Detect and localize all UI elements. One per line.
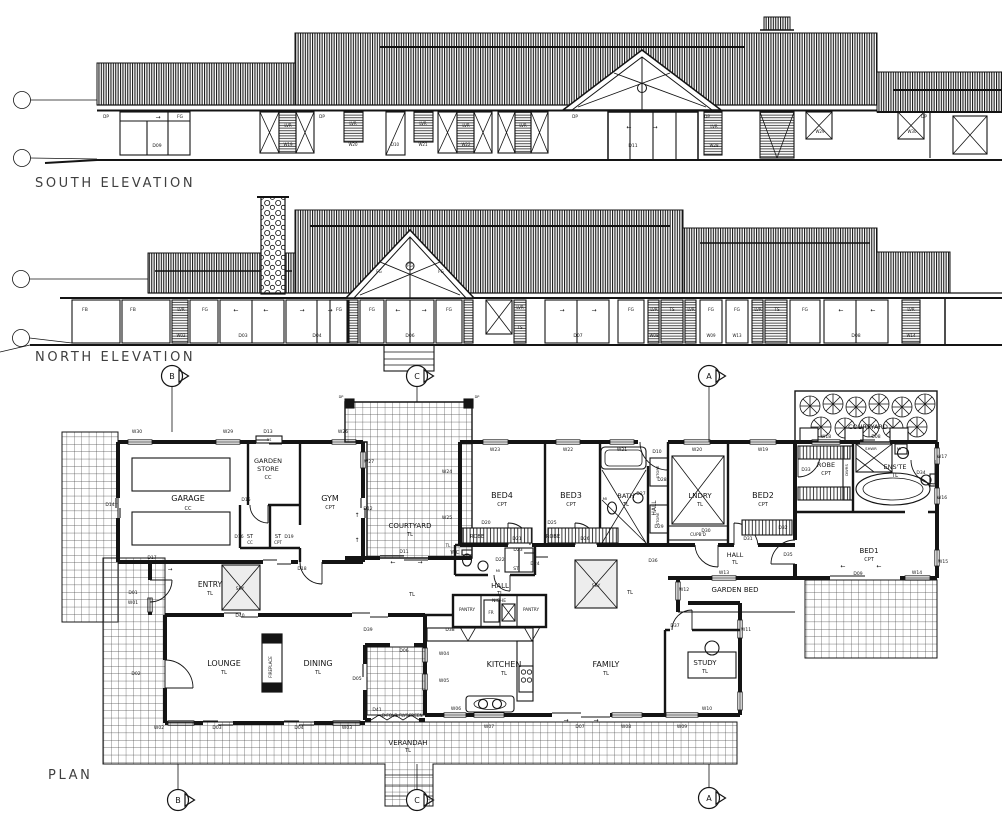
window-tag: W13 xyxy=(719,570,729,576)
fixture-label: ST xyxy=(513,566,519,572)
window-tag: W20 xyxy=(692,447,702,453)
fixture-label: DP xyxy=(339,395,344,399)
bath-toilet xyxy=(608,502,617,514)
finish-code: CPT xyxy=(566,502,577,508)
elevation-tag: FG xyxy=(177,114,184,120)
car-space xyxy=(132,458,230,491)
fixture-label: B-FOLD FLYSCREEN xyxy=(382,713,423,718)
window-tag: W17 xyxy=(937,454,947,460)
elevation-tag: LVR xyxy=(177,307,185,312)
elevation-tag: FG xyxy=(708,307,715,313)
direction-arrow: ← xyxy=(876,563,881,570)
window-tag: W05 xyxy=(439,678,449,684)
finish-code: CPT xyxy=(758,502,769,508)
elevation-tag: D08 xyxy=(851,333,860,339)
elevation-tag: → xyxy=(327,307,332,314)
room-label: GARAGE xyxy=(171,494,205,503)
elevation-tag: LVR xyxy=(284,123,292,128)
fixture-label: MI xyxy=(897,446,901,451)
post xyxy=(464,399,473,408)
door-tag: D13 xyxy=(263,429,272,435)
window-tag: W22 xyxy=(563,447,573,453)
door-tag: D09 xyxy=(853,571,862,577)
direction-arrow: → xyxy=(593,717,598,724)
elevation-tag: LVR xyxy=(516,305,524,310)
bed1-paving xyxy=(805,580,937,658)
elevation-tag: W22 xyxy=(461,142,471,147)
door-tag: D02 xyxy=(131,671,140,677)
elevation-tag: DP xyxy=(103,114,109,119)
room-label: LOUNGE xyxy=(207,659,241,668)
elevation-tag: FG xyxy=(438,269,443,274)
elevation-tag: ← xyxy=(395,307,400,314)
elevation-tag: ← xyxy=(263,307,268,314)
elevation-tag: W08 xyxy=(649,333,659,338)
section-marker: A xyxy=(699,366,726,387)
finish-code: TL xyxy=(891,473,898,479)
room-label: GYM xyxy=(321,494,339,503)
finish-code: TL xyxy=(496,591,503,597)
finish-code: TL xyxy=(408,592,415,598)
room-label: ENS'TE xyxy=(884,463,907,471)
section-marker-letter: C xyxy=(414,372,420,381)
door-tag: D18 xyxy=(297,566,306,572)
section-marker-letter: A xyxy=(706,794,712,803)
fixture-label: FIREPLACE xyxy=(268,656,273,678)
door-tag: D23 xyxy=(513,547,522,553)
finish-code: CPT xyxy=(864,557,875,563)
elevation-tag: ← xyxy=(870,307,875,314)
post xyxy=(345,399,354,408)
room-label: GARDEN BED xyxy=(712,586,759,594)
door-tag: D36 xyxy=(648,558,657,564)
window-tag: W09 xyxy=(677,724,687,730)
elevation-tag: FG xyxy=(369,307,376,313)
finish-code: TL xyxy=(500,671,507,677)
room-label: ENTRY xyxy=(198,580,223,589)
window-tag: W03 xyxy=(342,725,352,731)
window-tag: W24 xyxy=(442,469,452,475)
room-label: HALL xyxy=(727,551,744,559)
door-tag: D41 xyxy=(372,707,381,713)
elevation-tag: → xyxy=(559,307,564,314)
elevation-tag: ← xyxy=(233,307,238,314)
window-tag: W04 xyxy=(439,651,449,657)
direction-arrow: → xyxy=(168,567,173,573)
door-tag: D07 xyxy=(575,724,584,730)
finish-code: TL xyxy=(406,532,413,538)
section-marker: B xyxy=(168,790,195,811)
elevation-tag: W19 xyxy=(283,142,293,147)
window-tag: W30 xyxy=(132,429,142,435)
door-tag: D17 xyxy=(147,555,156,561)
elevation-tag: TS xyxy=(517,325,523,330)
fixture-label: SKY xyxy=(592,583,601,589)
finish-code: CPT xyxy=(497,502,508,508)
south-roof xyxy=(97,17,1002,112)
room-label: LNDRY xyxy=(688,492,712,500)
elevation-tag: FG xyxy=(336,307,343,313)
sink xyxy=(493,700,502,709)
robe-shelf xyxy=(798,487,850,500)
room-label: HALL xyxy=(491,582,509,590)
elevation-tag: D11 xyxy=(628,143,637,149)
wc-basin xyxy=(478,561,488,571)
door-tag: D22 xyxy=(495,557,504,563)
elevation-tag: FG xyxy=(734,307,741,313)
pantry-doors xyxy=(460,627,540,641)
window-tag: W07 xyxy=(484,724,494,730)
elevation-tag: LVR xyxy=(650,307,658,312)
room-label: VERANDAH xyxy=(388,739,427,747)
door-tag: D21 xyxy=(512,536,521,542)
window-tag: W19 xyxy=(758,447,768,453)
finish-code: CC xyxy=(185,506,192,512)
window-tag: W16 xyxy=(937,495,947,501)
elevation-tag: DP xyxy=(921,114,927,119)
door-tag: D25 xyxy=(547,520,556,526)
room-label: GARDEN xyxy=(254,457,282,465)
elevation-tag: FG xyxy=(376,269,381,274)
window-tag: W10 xyxy=(702,706,712,712)
door-tag: D27 xyxy=(636,491,645,497)
elevation-tag: → xyxy=(155,114,160,121)
finish-code: CPT xyxy=(274,540,282,545)
south-elevation: SOUTH ELEVATION xyxy=(14,17,1002,191)
elevation-tag: D04 xyxy=(312,333,321,339)
direction-arrow: → xyxy=(417,559,422,566)
fixture-label: ST xyxy=(247,534,254,540)
elevation-tag: FG xyxy=(802,307,809,313)
elevation-tag: W20 xyxy=(348,142,358,147)
direction-arrow: ↑ xyxy=(354,537,359,544)
door-tag: D32 xyxy=(778,525,787,531)
window-tag: W11 xyxy=(741,627,751,633)
door-tag: D08 xyxy=(871,434,880,440)
door-tag: D37 xyxy=(670,623,679,629)
finish-code: TL xyxy=(404,748,411,754)
finish-code: TL xyxy=(206,591,213,597)
door-tag: D33 xyxy=(801,467,810,473)
elevation-tag: LVR xyxy=(754,307,762,312)
finish-code: CC xyxy=(247,540,253,545)
door-tag: D20 xyxy=(481,520,490,526)
elevation-tag: DP xyxy=(572,114,578,119)
elevation-tag: ← xyxy=(838,307,843,314)
window-tag: W01 xyxy=(128,600,138,606)
skylight-boxes xyxy=(222,560,617,610)
room-label: BATH xyxy=(617,492,634,500)
fixture-label: DP xyxy=(475,395,480,399)
fixture-label: SKY xyxy=(236,586,245,592)
room-label: BED3 xyxy=(560,491,582,500)
door-tag: D34 xyxy=(916,470,925,476)
fixture-label: FR xyxy=(488,610,493,615)
direction-arrow: ← xyxy=(390,559,395,566)
door-tag: D04 xyxy=(294,725,303,731)
room-label: ROBE xyxy=(817,461,835,469)
window-tag: W25 xyxy=(442,515,452,521)
elevation-tag: D10 xyxy=(391,142,400,147)
section-marker: A xyxy=(699,788,726,809)
room-label: COURTYARD xyxy=(848,423,888,431)
window-tag: W29 xyxy=(223,429,233,435)
north-elevation: NORTH ELEVATION xyxy=(0,197,1002,371)
door-tag: D15 xyxy=(241,497,250,503)
fixture-label: PANTRY xyxy=(459,607,475,612)
window-tag: W08 xyxy=(621,724,631,730)
elevation-tag: → xyxy=(652,124,657,131)
fixture-label: PANTRY xyxy=(523,607,539,612)
elevation-tag: LVR xyxy=(710,124,718,129)
door-tag: D11 xyxy=(399,549,408,555)
elevation-tag: LVR xyxy=(907,307,915,312)
elevation-tag: FG xyxy=(407,263,412,268)
elevation-tag: W02 xyxy=(176,333,186,338)
door-tag: D01 xyxy=(128,590,137,596)
elevation-tag: W13 xyxy=(732,333,742,338)
north-roof xyxy=(148,197,950,294)
window-tag: W14 xyxy=(912,570,922,576)
elevation-tag: LVR xyxy=(419,121,427,126)
elevation-tag: TS xyxy=(669,307,675,312)
elevation-tag: → xyxy=(299,307,304,314)
window-tag: W12 xyxy=(679,587,689,593)
door-tag: D40 xyxy=(235,613,244,619)
elevation-tag: ← xyxy=(626,124,631,131)
door-tag: D35 xyxy=(783,552,792,558)
fixture-label: DWRS xyxy=(844,464,849,476)
room-label: STORE xyxy=(257,465,279,473)
direction-arrow: ← xyxy=(840,563,845,570)
window-tag: W18 xyxy=(821,434,831,440)
fixture-label: NICHE xyxy=(492,598,506,604)
window-tag: W26 xyxy=(338,429,348,435)
elevation-tag: W21 xyxy=(418,142,428,147)
direction-arrow: ↑ xyxy=(354,512,359,519)
room-label: WC xyxy=(450,550,459,556)
door-tag: D03 xyxy=(212,725,221,731)
chair xyxy=(705,641,719,655)
plan-title: PLAN xyxy=(48,768,92,783)
window-tag: W06 xyxy=(451,706,461,712)
section-marker-letter: A xyxy=(706,372,712,381)
room-label: DINING xyxy=(303,659,332,668)
door-tag: D16 xyxy=(234,534,243,540)
elevation-tag: TS xyxy=(774,307,780,312)
chimney xyxy=(261,197,285,294)
fixture-label: ST xyxy=(275,534,282,540)
planted-courtyard xyxy=(795,391,937,442)
finish-code: TL xyxy=(622,502,629,508)
north-elevation-title: NORTH ELEVATION xyxy=(35,350,195,365)
elevation-tag: FB xyxy=(130,307,136,313)
section-marker: C xyxy=(407,366,434,387)
room-label: BED4 xyxy=(491,491,513,500)
room-label: KITCHEN xyxy=(487,660,522,669)
window-tag: W23 xyxy=(490,447,500,453)
elevation-tag: D09 xyxy=(152,143,161,149)
finish-code: TL xyxy=(731,560,738,566)
door-tag: D24 xyxy=(530,561,539,567)
section-marker: B xyxy=(162,366,189,387)
window-tag: W02 xyxy=(154,725,164,731)
fixture-label: MI xyxy=(496,568,500,573)
finish-code: CC xyxy=(265,475,272,481)
fixture-label: STORE xyxy=(655,512,660,525)
room-label: BED2 xyxy=(752,491,774,500)
finish-code: TL xyxy=(701,669,708,675)
fixture-label: CUPB'D xyxy=(690,532,706,537)
car-space xyxy=(132,512,230,545)
fixture-label: MI xyxy=(603,496,607,501)
door-tag: D19 xyxy=(284,534,293,540)
elevation-tag: FG xyxy=(446,307,453,313)
door-tag: D06 xyxy=(399,648,408,654)
south-elevation-title: SOUTH ELEVATION xyxy=(35,176,195,191)
elevation-tag: LVR xyxy=(462,123,470,128)
finish-code: TL xyxy=(602,671,609,677)
elevation-tag: W28 xyxy=(709,143,719,148)
finish-code: TL xyxy=(696,502,703,508)
kitchen-bench xyxy=(427,628,533,641)
fixture-label: RS xyxy=(267,438,272,442)
elevation-tag: FG xyxy=(202,307,209,313)
finish-code: CPT xyxy=(325,505,336,511)
door-tag: D14 xyxy=(105,502,114,508)
window-tag: W27 xyxy=(364,459,374,465)
elevation-tag: W30 xyxy=(907,129,917,134)
elevation-tag: FB xyxy=(82,307,88,313)
elevation-tag: D06 xyxy=(405,333,414,339)
window-tag: W21 xyxy=(617,447,627,453)
section-marker-letter: B xyxy=(175,796,181,805)
fixture-label: STORE xyxy=(655,465,660,478)
elevation-tag: W29 xyxy=(815,129,825,134)
drawing-sheet: SOUTH ELEVATION xyxy=(0,0,1002,820)
sink xyxy=(479,700,488,709)
finish-code: TL xyxy=(314,670,321,676)
room-label: COURTYARD xyxy=(389,522,432,530)
window-tag: W15 xyxy=(938,559,948,565)
fixture-label: ROBE xyxy=(546,534,560,540)
elevation-tag: D03 xyxy=(238,333,247,339)
elevation-tag: LVR xyxy=(349,121,357,126)
south-openings xyxy=(120,112,987,160)
elevation-tag: → xyxy=(421,307,426,314)
finish-code: CPT xyxy=(821,471,832,477)
door-tag: D05 xyxy=(352,676,361,682)
direction-arrow: → xyxy=(563,717,568,724)
elevation-tag: LVR xyxy=(687,307,695,312)
elevation-tag: FG xyxy=(628,307,635,313)
door-tag: D12 xyxy=(363,506,372,512)
fixture-label: SHWR xyxy=(865,446,877,451)
finish-code: TL xyxy=(445,543,451,548)
elevation-tag: → xyxy=(591,307,596,314)
door-tag: D10 xyxy=(652,449,661,455)
room-label: FAMILY xyxy=(593,660,620,669)
section-marker-letter: C xyxy=(414,796,420,805)
finish-code: TL xyxy=(626,590,633,596)
elevation-tag: DP xyxy=(319,114,325,119)
elevation-tag: LVR xyxy=(519,123,527,128)
door-tag: D38 xyxy=(445,627,454,633)
fixture-label: ROBE xyxy=(470,534,484,540)
door-tag: D26 xyxy=(580,536,589,542)
room-label: STUDY xyxy=(693,659,717,667)
section-marker-letter: B xyxy=(169,372,175,381)
elevation-tag: D07 xyxy=(573,333,582,339)
elevation-tag: W14 xyxy=(906,333,916,338)
elevation-tag: W09 xyxy=(706,333,716,338)
blueprint-canvas: SOUTH ELEVATION xyxy=(0,0,1002,820)
finish-code: TL xyxy=(220,670,227,676)
door-tag: D31 xyxy=(743,536,752,542)
elevation-tag: DP xyxy=(704,114,710,119)
room-label: BED1 xyxy=(859,547,878,555)
robe-shelf xyxy=(798,446,850,459)
door-tag: D39 xyxy=(363,627,372,633)
